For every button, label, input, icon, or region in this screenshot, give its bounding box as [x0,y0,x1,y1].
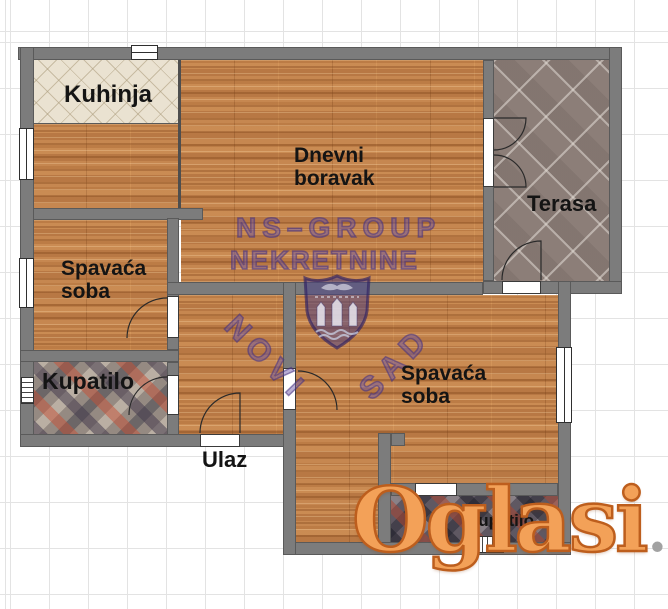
floorplan-image: Kuhinja Dnevni boravak Terasa Spavaća so… [0,0,668,609]
window-left-kitchen [19,128,34,180]
label-living-room: Dnevni boravak [294,144,375,190]
oglasi-logo: Oglasi.rs [352,468,668,572]
wall-hallway-right [283,282,296,555]
label-bedroom-left: Spavaća soba [61,257,146,303]
wall-closet-stub [391,433,405,446]
wall-bedroom-bath-left [20,350,179,362]
label-bedroom-right: Spavaća soba [401,362,486,408]
label-bedroom-right-line2: soba [401,385,486,408]
oglasi-logo-word: Oglasi [352,468,646,572]
label-bedroom-left-line1: Spavaća [61,257,146,280]
label-living-line2: boravak [294,167,375,190]
wall-top [18,47,622,60]
wall-right-upper [609,47,622,293]
label-bedroom-right-line1: Spavaća [401,362,486,385]
door-opening-bathroom-left [167,375,179,415]
label-kitchen: Kuhinja [64,82,152,108]
door-opening-terrace [502,281,541,294]
door-opening-entrance [200,434,240,447]
label-bedroom-left-line2: soba [61,280,146,303]
radiator-bathroom-left [21,377,34,404]
watermark-agency-line1: NS–GROUP [236,212,441,244]
window-top-kitchen [131,45,158,60]
label-terrace: Terasa [527,192,596,216]
door-opening-bedroom-left [167,296,179,338]
kitchen-divider-line [178,60,181,208]
door-opening-french-terrace [483,118,494,187]
label-entrance: Ulaz [202,448,247,472]
window-right-bedroom [556,347,572,423]
novi-sad-emblem-icon [300,271,374,351]
label-bathroom-left: Kupatilo [42,369,134,394]
terrace-floor [494,60,609,281]
kitchen-wood-floor [33,124,178,208]
window-left-bedroom [19,258,34,308]
label-living-line1: Dnevni [294,144,375,167]
oglasi-logo-tld: .rs [648,499,668,565]
wall-bottom-left [20,434,296,447]
